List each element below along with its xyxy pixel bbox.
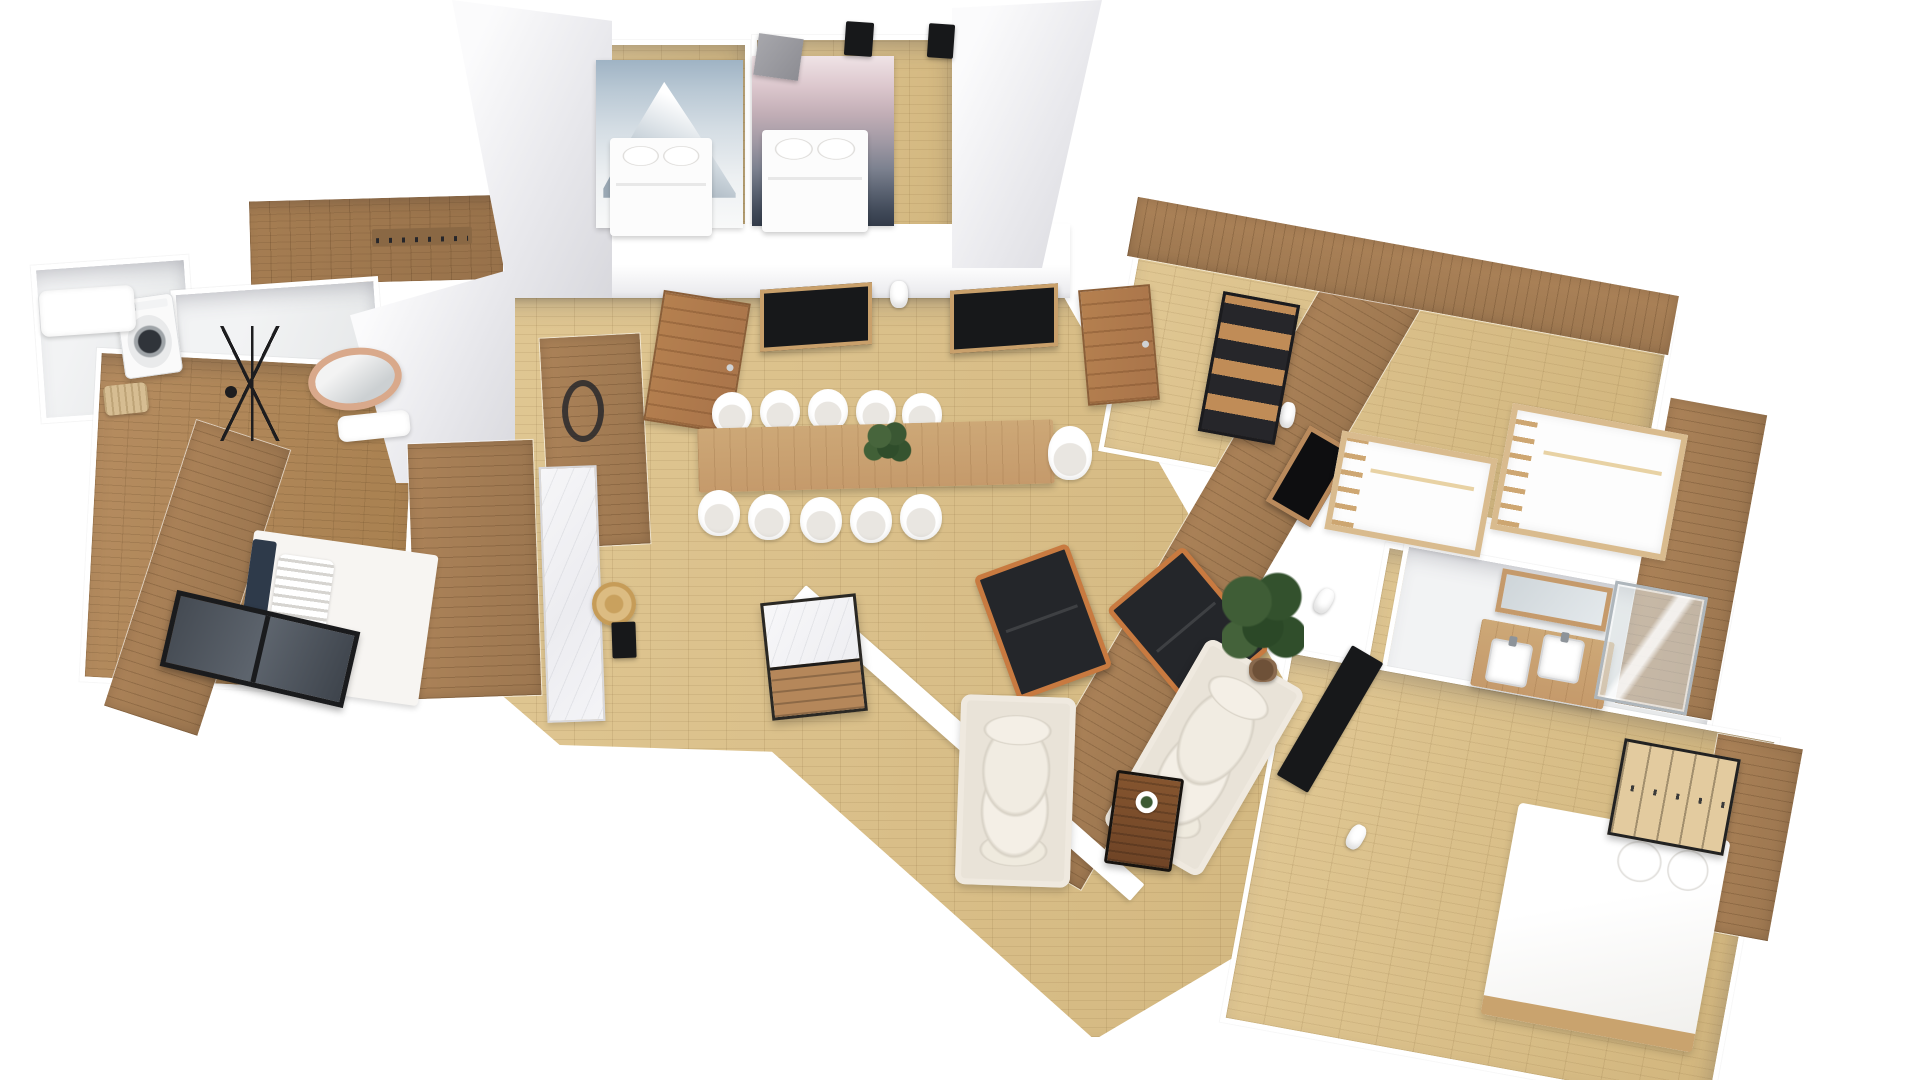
tv-bedroom-a[interactable] — [844, 21, 874, 57]
desk-niche-b — [950, 283, 1058, 354]
kitchen-island[interactable] — [760, 593, 868, 720]
dining-chair-6[interactable] — [698, 490, 740, 536]
wardrobe-slatted[interactable] — [1607, 738, 1741, 856]
sconce-media-2[interactable] — [1311, 586, 1338, 617]
tv-bedroom-b[interactable] — [927, 23, 955, 59]
vanity-sink-2[interactable] — [1536, 634, 1585, 685]
dining-chair-end[interactable] — [1048, 426, 1092, 480]
kitchen-black-board[interactable] — [611, 622, 636, 659]
vanity-sink-1[interactable] — [1484, 638, 1533, 689]
sconce-dining[interactable] — [890, 281, 908, 308]
dining-chair-7[interactable] — [748, 494, 790, 540]
kitchen-straw-hat[interactable] — [592, 582, 636, 626]
laundry-basket[interactable] — [103, 382, 150, 416]
door-bedroom-b[interactable] — [1078, 284, 1160, 406]
laundry-counter[interactable] — [39, 285, 137, 338]
wreath-decor[interactable] — [562, 380, 604, 442]
towel-ladder-rack[interactable] — [190, 326, 315, 441]
dining-chair-9[interactable] — [850, 497, 892, 543]
sofa-1[interactable] — [955, 694, 1077, 888]
floorplan-3d-viewport[interactable] — [0, 0, 1920, 1080]
coat-hook-rail[interactable] — [372, 227, 472, 247]
dining-chair-8[interactable] — [800, 497, 842, 543]
wall-slab-right-of-bedroom-b — [952, 0, 1102, 268]
bunk-bed-2[interactable] — [1490, 403, 1688, 561]
coffee-table[interactable] — [1104, 770, 1184, 873]
living-tall-plant[interactable] — [1222, 566, 1304, 684]
desk-niche-a — [760, 282, 872, 352]
standing-mirror-panel[interactable] — [753, 33, 803, 81]
dining-chair-10[interactable] — [900, 494, 942, 540]
bed-bedroom-b[interactable] — [762, 130, 868, 232]
dining-centerpiece-plant[interactable] — [862, 420, 912, 466]
bed-bedroom-a[interactable] — [610, 138, 712, 236]
